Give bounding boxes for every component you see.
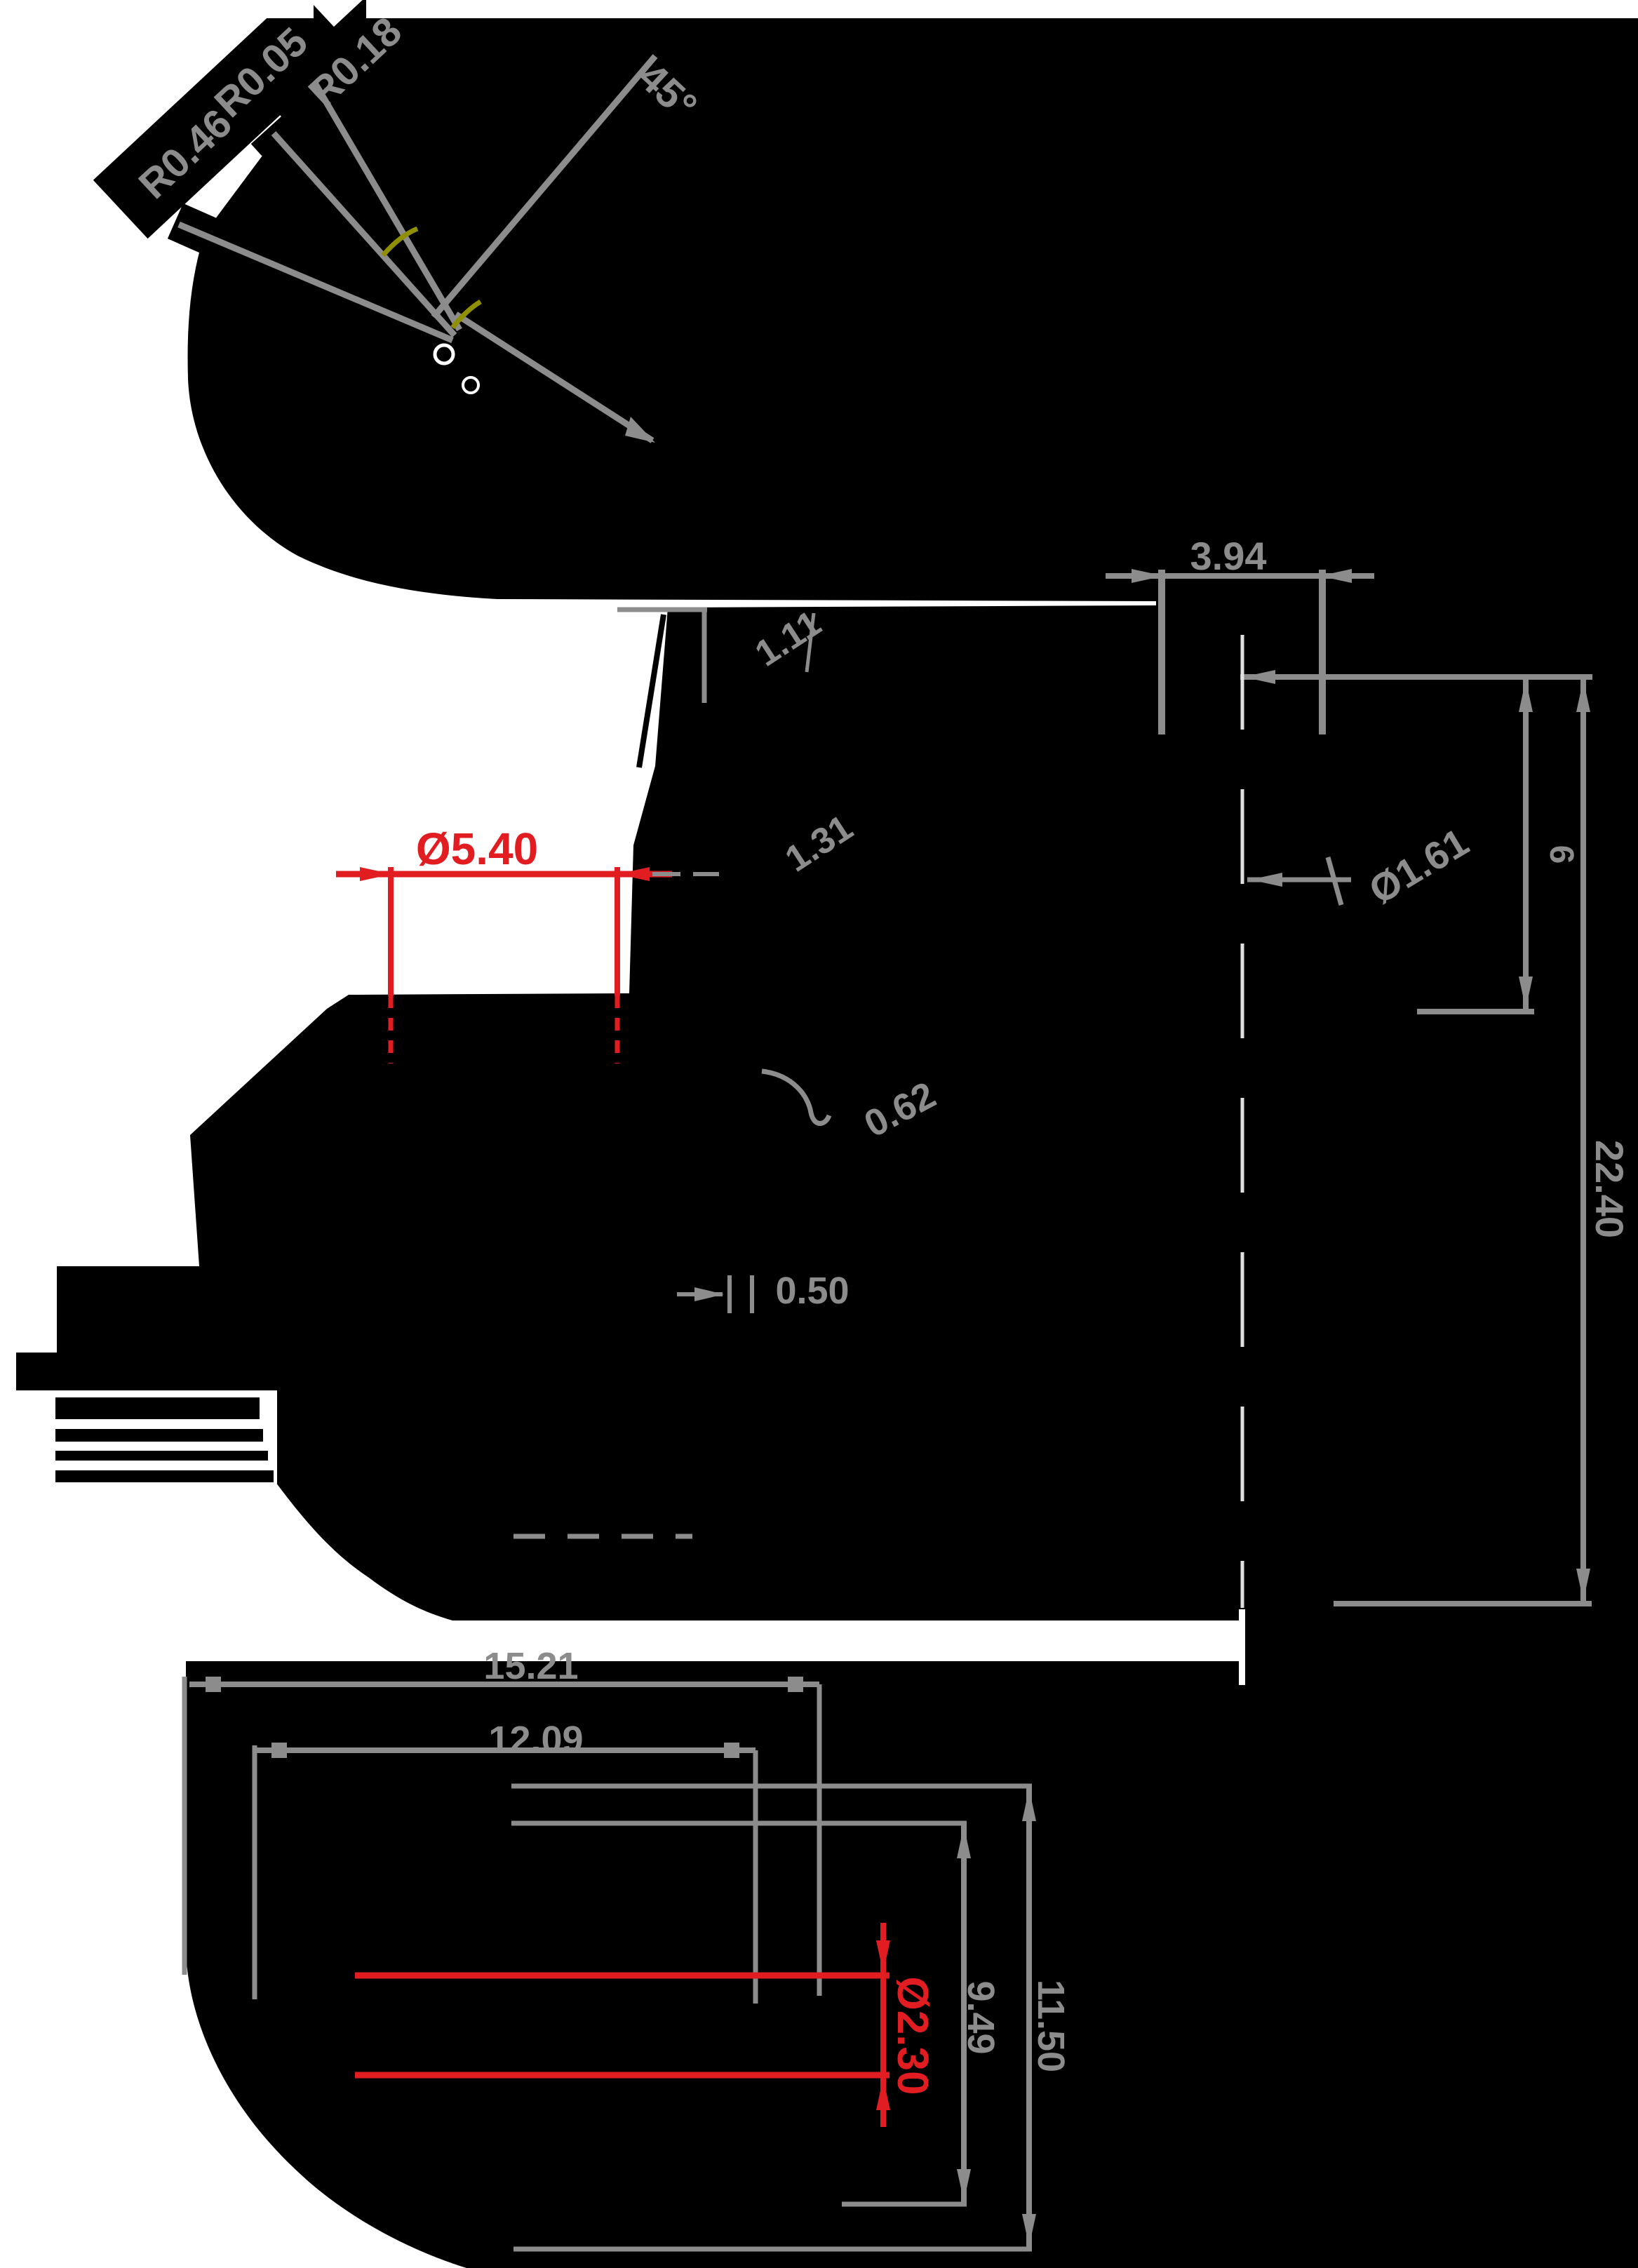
- svg-text:Ø5.40: Ø5.40: [416, 824, 538, 874]
- svg-text:0.50: 0.50: [775, 1270, 849, 1312]
- svg-text:11.50: 11.50: [1030, 1980, 1072, 2072]
- svg-text:15.21: 15.21: [483, 1645, 578, 1687]
- svg-text:9.49: 9.49: [960, 1980, 1002, 2054]
- svg-text:Ø2.30: Ø2.30: [888, 1977, 937, 2095]
- svg-text:22.40: 22.40: [1587, 1140, 1632, 1238]
- svg-text:12.09: 12.09: [488, 1719, 583, 1761]
- svg-text:6: 6: [1543, 845, 1580, 864]
- svg-text:3.94: 3.94: [1190, 534, 1267, 578]
